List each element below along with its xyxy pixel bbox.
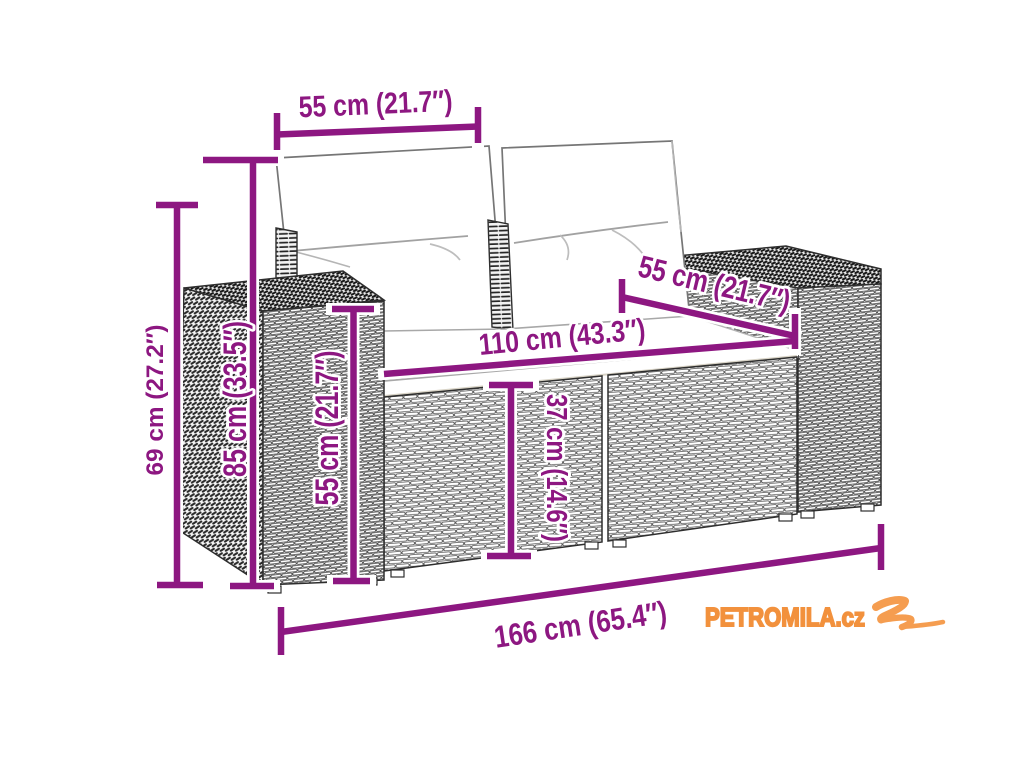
- svg-text:55 cm (21.7″): 55 cm (21.7″): [298, 85, 453, 125]
- svg-text:85 cm (33.5″): 85 cm (33.5″): [217, 321, 253, 477]
- svg-text:69 cm (27.2″): 69 cm (27.2″): [142, 325, 169, 476]
- svg-text:PETROMILA.cz: PETROMILA.cz: [705, 602, 865, 632]
- svg-text:55 cm (21.7″): 55 cm (21.7″): [309, 351, 345, 506]
- svg-text:37 cm (14.6″): 37 cm (14.6″): [540, 394, 572, 542]
